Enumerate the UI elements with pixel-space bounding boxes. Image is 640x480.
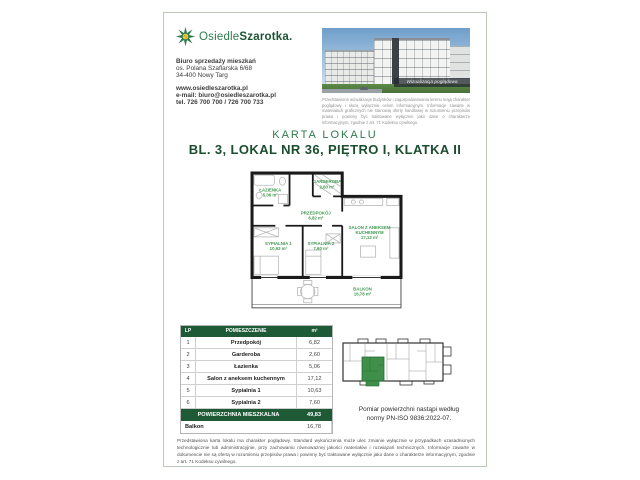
row-room-name: Sypialnia 1	[196, 385, 297, 397]
brand-name: OsiedleSzarotka.	[199, 31, 292, 43]
label-salon-area: 17,12 m²	[361, 235, 379, 240]
balcony-outline	[252, 277, 401, 307]
brand-name-part2: Szarotka.	[239, 31, 292, 43]
col-header-lp: LP	[181, 326, 196, 337]
measurement-note-line2: normy PN-ISO 9836:2022-07.	[340, 415, 478, 424]
address-line2: 34-400 Nowy Targ	[176, 72, 276, 79]
page-title: BL. 3, LOKAL NR 36, PIĘTRO I, KLATKA II	[164, 142, 486, 157]
label-garderoba-area: 2,60 m²	[320, 184, 336, 189]
living-area-label: POWIERZCHNIA MIESZKALNA	[181, 409, 297, 421]
visualisation-disclaimer: Przedstawione wizualizacje budynków i za…	[322, 97, 470, 126]
col-header-room: POMIESZCZENIE	[196, 326, 297, 337]
building-floor-overview	[340, 331, 478, 393]
address-line1: os. Polana Szaflarska 6/68	[176, 65, 276, 72]
row-room-name: Sypialnia 2	[196, 397, 297, 409]
website-text: www.osiedleszarotka.pl	[176, 85, 276, 92]
email-text: e-mail: biuro@osiedleszarotka.pl	[176, 92, 276, 99]
floor-overview-column: Pomiar powierzchni nastąpi według normy …	[340, 331, 478, 424]
card-kicker: KARTA LOKALU	[164, 129, 486, 141]
living-area-value: 49,83	[297, 409, 332, 421]
measurement-standard-note: Pomiar powierzchni nastąpi według normy …	[340, 406, 478, 424]
row-no: 5	[181, 385, 196, 397]
balcony-row-value: 16,78	[297, 421, 332, 433]
row-no: 4	[181, 373, 196, 385]
row-room-area: 7,60	[297, 397, 332, 409]
row-no: 3	[181, 361, 196, 373]
label-balkon-area: 16,78 m²	[354, 292, 372, 297]
building-left-wing	[325, 50, 377, 84]
row-no: 1	[181, 337, 196, 349]
row-room-area: 6,82	[297, 337, 332, 349]
apartment-floor-plan: ŁAZIENKA 5,06 m² PRZEDPOKÓJ 6,82 m² GARD…	[232, 167, 420, 321]
row-no: 6	[181, 397, 196, 409]
row-room-area: 10,63	[297, 385, 332, 397]
row-room-area: 17,12	[297, 373, 332, 385]
photo-road	[322, 89, 382, 93]
sales-office-label: Biuro sprzedaży mieszkań	[176, 58, 276, 65]
label-lazienka-area: 5,06 m²	[263, 192, 279, 197]
row-room-name: Przedpokój	[196, 337, 297, 349]
edelweiss-flower-icon	[175, 26, 196, 47]
row-room-area: 5,06	[297, 361, 332, 373]
label-sypialnia2-area: 7,60 m²	[313, 246, 329, 251]
row-room-name: Salon z aneksem kuchennym	[196, 373, 297, 385]
property-card: OsiedleSzarotka. Biuro sprzedaży mieszka…	[163, 12, 487, 467]
legal-disclaimer: Przedstawiona karta lokalu ma charakter …	[177, 437, 475, 465]
measurement-note-line1: Pomiar powierzchni nastąpi według	[340, 406, 478, 415]
row-room-name: Łazienka	[196, 361, 297, 373]
label-sypialnia1-area: 10,63 m²	[270, 246, 288, 251]
row-room-name: Garderoba	[196, 349, 297, 361]
brand-name-part1: Osiedle	[199, 31, 239, 43]
photo-caption: Wizualizacja poglądowa	[394, 78, 470, 87]
photo-car	[360, 87, 368, 90]
col-header-unit: m²	[297, 326, 332, 337]
brand-logo: OsiedleSzarotka.	[175, 26, 292, 47]
contact-block: Biuro sprzedaży mieszkań os. Polana Szaf…	[176, 58, 276, 106]
row-no: 2	[181, 349, 196, 361]
label-przedpokoj-area: 6,82 m²	[308, 216, 324, 221]
balcony-row-label: Balkon	[181, 421, 297, 433]
row-room-area: 2,60	[297, 349, 332, 361]
phone-text: tel. 726 700 700 / 726 700 733	[176, 99, 276, 106]
rooms-table: LP POMIESZCZENIE m² 1 Przedpokój 6,82 2 …	[180, 325, 333, 434]
building-photo: Wizualizacja poglądowa	[322, 28, 470, 93]
